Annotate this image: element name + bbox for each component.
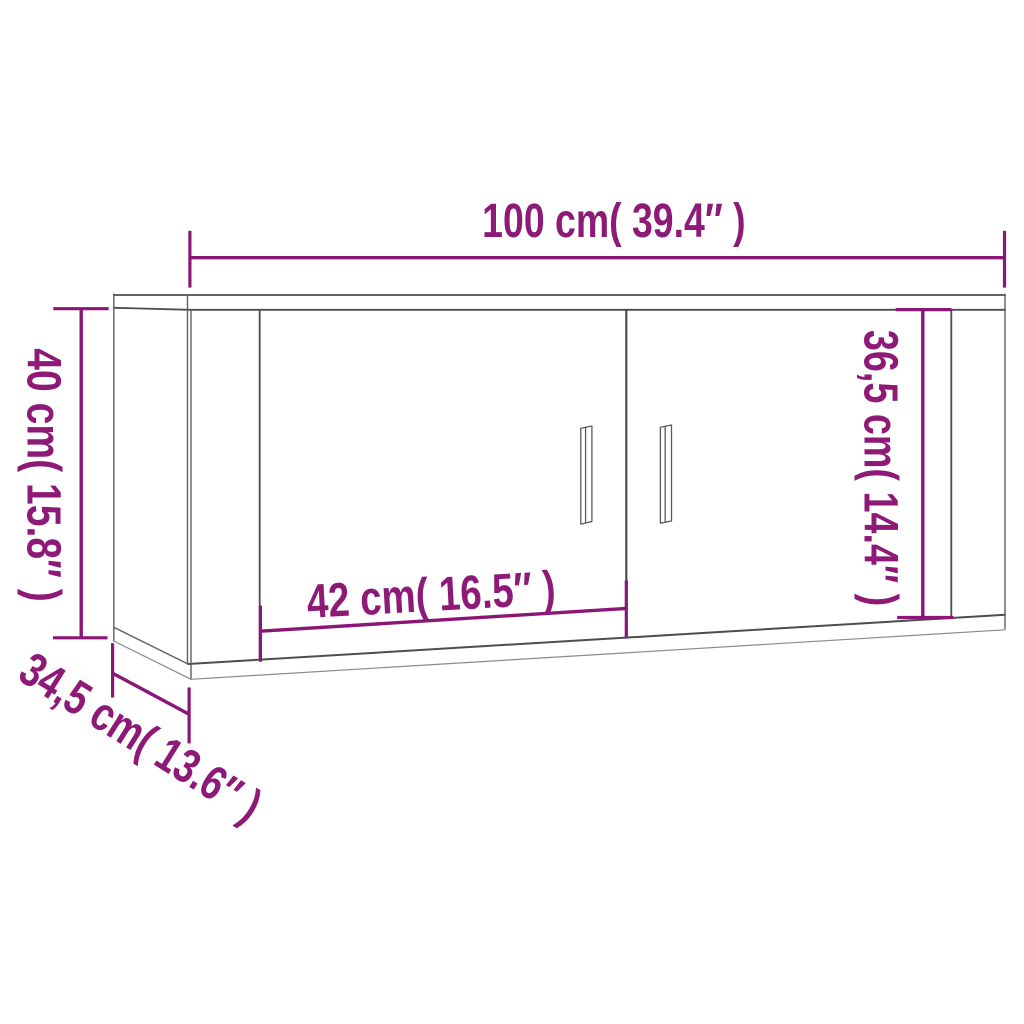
- svg-text:100 cm( 39.4″ ): 100 cm( 39.4″ ): [482, 195, 745, 249]
- svg-text:36,5 cm( 14.4″ ): 36,5 cm( 14.4″ ): [853, 330, 906, 606]
- svg-text:40 cm( 15.8″ ): 40 cm( 15.8″ ): [17, 348, 71, 601]
